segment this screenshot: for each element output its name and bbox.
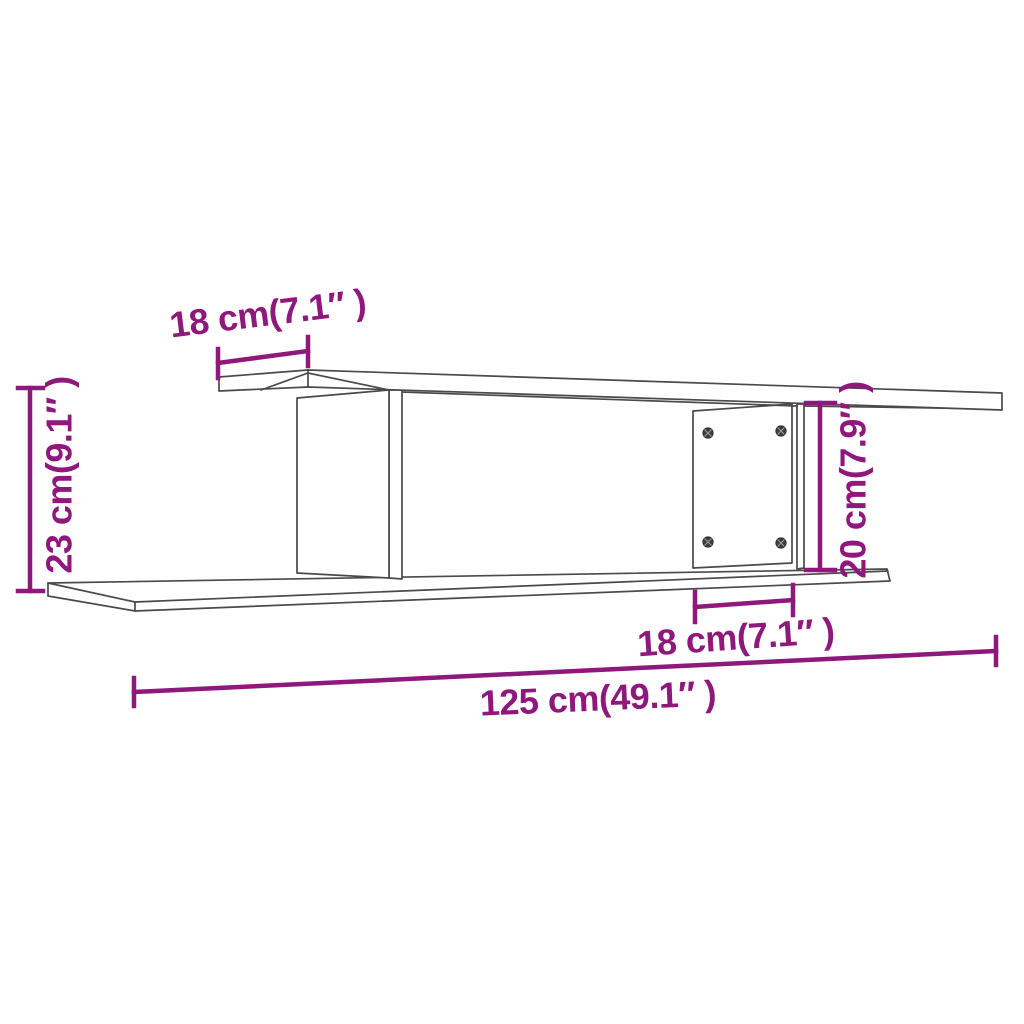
dim-right-height-label: 20 cm(7.9″ ) xyxy=(833,381,874,578)
product-dimension-diagram: 18 cm(7.1″ ) 23 cm(9.1″ ) 20 cm(7.9″ ) xyxy=(0,0,1024,1024)
dim-right-height-line xyxy=(806,403,835,570)
screw-icon xyxy=(703,537,713,547)
dim-top-depth-label: 18 cm(7.1″ ) xyxy=(167,281,368,346)
right-divider xyxy=(797,404,804,569)
mounting-panel xyxy=(693,404,792,568)
dim-left-height-label: 23 cm(9.1″ ) xyxy=(39,376,80,573)
screw-icon xyxy=(776,538,786,548)
dimension-annotations: 18 cm(7.1″ ) 23 cm(9.1″ ) 20 cm(7.9″ ) xyxy=(18,281,996,724)
dim-total-width-label: 125 cm(49.1″ ) xyxy=(479,672,717,723)
screw-icon xyxy=(776,426,786,436)
dim-bottom-depth-label: 18 cm(7.1″ ) xyxy=(636,610,836,665)
left-divider xyxy=(297,390,402,579)
screw-icon xyxy=(703,428,713,438)
bottom-shelf xyxy=(48,569,890,611)
